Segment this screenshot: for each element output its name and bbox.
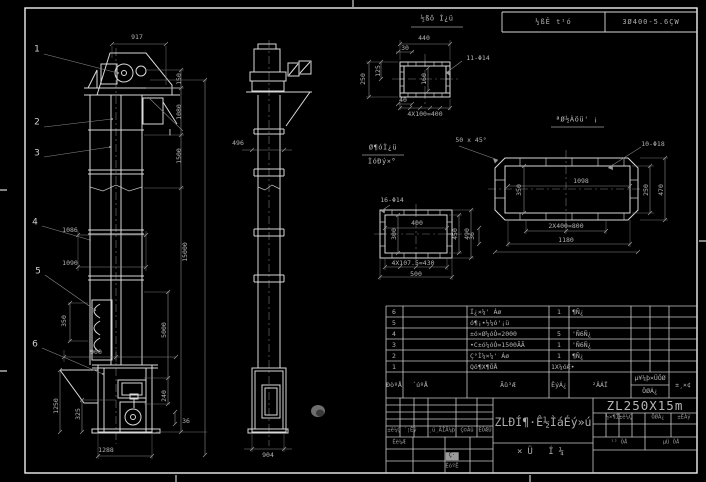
bom-cell-qty: 1 <box>557 352 561 359</box>
dim-label: ¹² ÕÅ <box>611 440 628 446</box>
dim-label: ¸ü¸ÄÎÄ¼þ <box>429 428 456 434</box>
bom-grid <box>386 306 697 398</box>
dim-label: Éè¼Æ <box>392 440 405 446</box>
bom-cell-name: •C±ó¼óÒ=1500ÃÃ <box>470 341 525 348</box>
break-lines <box>90 185 280 191</box>
dim-label: 900 <box>90 349 102 356</box>
dim-label: ´¦Êý <box>403 428 416 434</box>
balloon-label: 6 <box>32 341 38 350</box>
dim-label: 250 <box>643 184 650 196</box>
cad-drawing-canvas: ½ßÊ t¹ó 3Ø400-5.6ÇW ZL250X15m ZLÐÍ¶·Ê½Ìá… <box>0 0 706 482</box>
bom-cell-material: 'Ñ6Ñ¿ <box>572 341 592 348</box>
view-title: ÌóÐý×° <box>368 159 396 166</box>
dim-label: 40 <box>399 97 407 104</box>
detail-view-lines <box>380 62 638 258</box>
dim-label: 300 <box>391 228 398 240</box>
sheet-note-right: 3Ø400-5.6ÇW <box>605 12 697 32</box>
balloon-label: 5 <box>35 268 41 277</box>
dim-label: 36 <box>182 418 190 425</box>
drawing-number: ZL250X15m <box>593 398 697 413</box>
dim-label: 917 <box>131 34 143 41</box>
dim-label: 150 <box>176 73 183 85</box>
dimension-ticks <box>58 42 667 458</box>
dim-label: 1080 <box>176 104 183 120</box>
dim-label: 240 <box>161 390 168 402</box>
dim-label: 350 <box>61 315 68 327</box>
dim-label: 10-Φ18 <box>641 141 664 148</box>
bom-header: Ãû³Æ <box>500 382 516 389</box>
bom-cell-qty: 1 <box>557 308 561 315</box>
leader-lines <box>42 54 641 374</box>
view-title: ªØ½Àöü' ¡ <box>556 117 598 124</box>
bom-header: ÖØÁ¿ <box>642 388 658 395</box>
bom-cell-no: 6 <box>392 308 396 315</box>
dim-label: 1500 <box>176 148 183 164</box>
dim-label: ½×¶Î±ê¼Ç <box>606 415 633 421</box>
dim-label: 450 <box>452 228 459 240</box>
dim-label: Ç©Ãû <box>460 428 473 434</box>
dim-label: ÉóºË <box>445 464 458 470</box>
bom-header: ²ÄÁÏ <box>592 382 608 389</box>
dim-label: 440 <box>418 35 430 42</box>
bom-header: ±¸×¢ <box>675 382 691 389</box>
bom-cell-no: 4 <box>392 330 396 337</box>
bom-header: µ¥¼þ×ÜÖØ <box>634 375 665 382</box>
side-view-lines <box>246 44 312 433</box>
extension-lines <box>64 40 668 459</box>
sheet-note-left: ½ßÊ t¹ó <box>502 12 605 32</box>
dim-label: ±ê¼Ç <box>387 428 400 434</box>
drawing-title: ZLÐÍ¶·Ê½ÌáÉý»ú <box>493 412 593 433</box>
bom-header: ÊýÁ¿ <box>551 382 567 389</box>
dim-label: 250 <box>360 73 367 85</box>
balloon-label: 3 <box>34 150 40 159</box>
dim-label: 496 <box>232 140 244 147</box>
bom-cell-no: 3 <box>392 341 396 348</box>
drawing-subtitle: ×Ü Í¼ <box>493 446 593 458</box>
bom-cell-name: ±ó×Ø¼óÒ=2000 <box>470 330 517 337</box>
balloon-label: 2 <box>34 119 40 128</box>
dim-label: 125 <box>375 65 382 77</box>
bom-cell-qty: 1 <box>557 341 561 348</box>
dim-label: 4X107.5=430 <box>391 260 434 267</box>
bom-cell-name: Qö¶X¶ÖÅ <box>470 363 497 370</box>
bom-cell-no: 2 <box>392 352 396 359</box>
bom-cell-qty: 5 <box>557 330 561 337</box>
dim-label: 500 <box>410 271 422 278</box>
dim-label: ÈÕÆÚ <box>478 428 491 434</box>
dimension-lines <box>60 44 665 456</box>
dim-label: 1086 <box>62 227 78 234</box>
dim-label: 50 x 45° <box>455 137 486 144</box>
dim-label: 470 <box>658 184 665 196</box>
view-title: ½ßô Ì¿ü <box>420 16 453 23</box>
bom-cell-name: ó¶¡•½¼ó'¡ü <box>470 319 509 326</box>
dim-label: 490 <box>464 228 471 240</box>
dim-label: 350 <box>516 184 523 196</box>
balloon-label: I <box>169 130 172 139</box>
dim-label: 904 <box>262 452 274 459</box>
dim-label: 5000 <box>161 322 168 338</box>
bom-cell-qty: 1X¼óÆ• <box>551 363 574 370</box>
bom-cell-material: ¶Ñ¿ <box>572 352 584 359</box>
bom-cell-no: 1 <box>392 363 396 370</box>
dim-label: 15000 <box>182 242 189 262</box>
dim-label: ±ÈÀý <box>677 415 690 421</box>
bom-cell-name: Ç°Ì¼×¼' Áø <box>470 352 509 359</box>
dim-label: 2X400=800 <box>548 223 583 230</box>
dim-label: 1288 <box>98 447 114 454</box>
dim-label: 16-Φ14 <box>380 197 403 204</box>
balloon-label: 4 <box>32 219 38 228</box>
dim-label: 400 <box>411 220 423 227</box>
dim-label: 1090 <box>62 260 78 267</box>
dim-label: 30 <box>401 45 409 52</box>
dim-label: 160 <box>421 73 428 85</box>
bom-cell-material: 'Ñ6Ñ¿ <box>572 330 592 337</box>
view-title: Ø¶óÌ¿ü <box>369 145 397 152</box>
bom-cell-material: ¶Ñ¿ <box>572 308 584 315</box>
dim-label: 325 <box>75 408 82 420</box>
dim-label: µÚ ÕÅ <box>663 440 680 446</box>
dim-label: 1250 <box>53 398 60 414</box>
bom-header: ÐòºÅ <box>386 382 402 389</box>
dim-label: 11-Φ14 <box>466 55 489 62</box>
bom-cell-no: 5 <box>392 319 396 326</box>
bom-cell-name: Í¿×¼' Áø <box>470 308 501 315</box>
dim-label: ÖØÁ¿ <box>651 415 664 421</box>
dim-label: Ç· <box>446 452 459 460</box>
bolt-ticks <box>380 62 638 258</box>
dim-label: 1180 <box>558 237 574 244</box>
stain-blob <box>311 405 325 417</box>
bom-header: ´úºÅ <box>412 382 428 389</box>
balloon-label: 1 <box>34 46 40 55</box>
dim-label: 4X100=400 <box>407 111 442 118</box>
dim-label: 1098 <box>573 178 589 185</box>
